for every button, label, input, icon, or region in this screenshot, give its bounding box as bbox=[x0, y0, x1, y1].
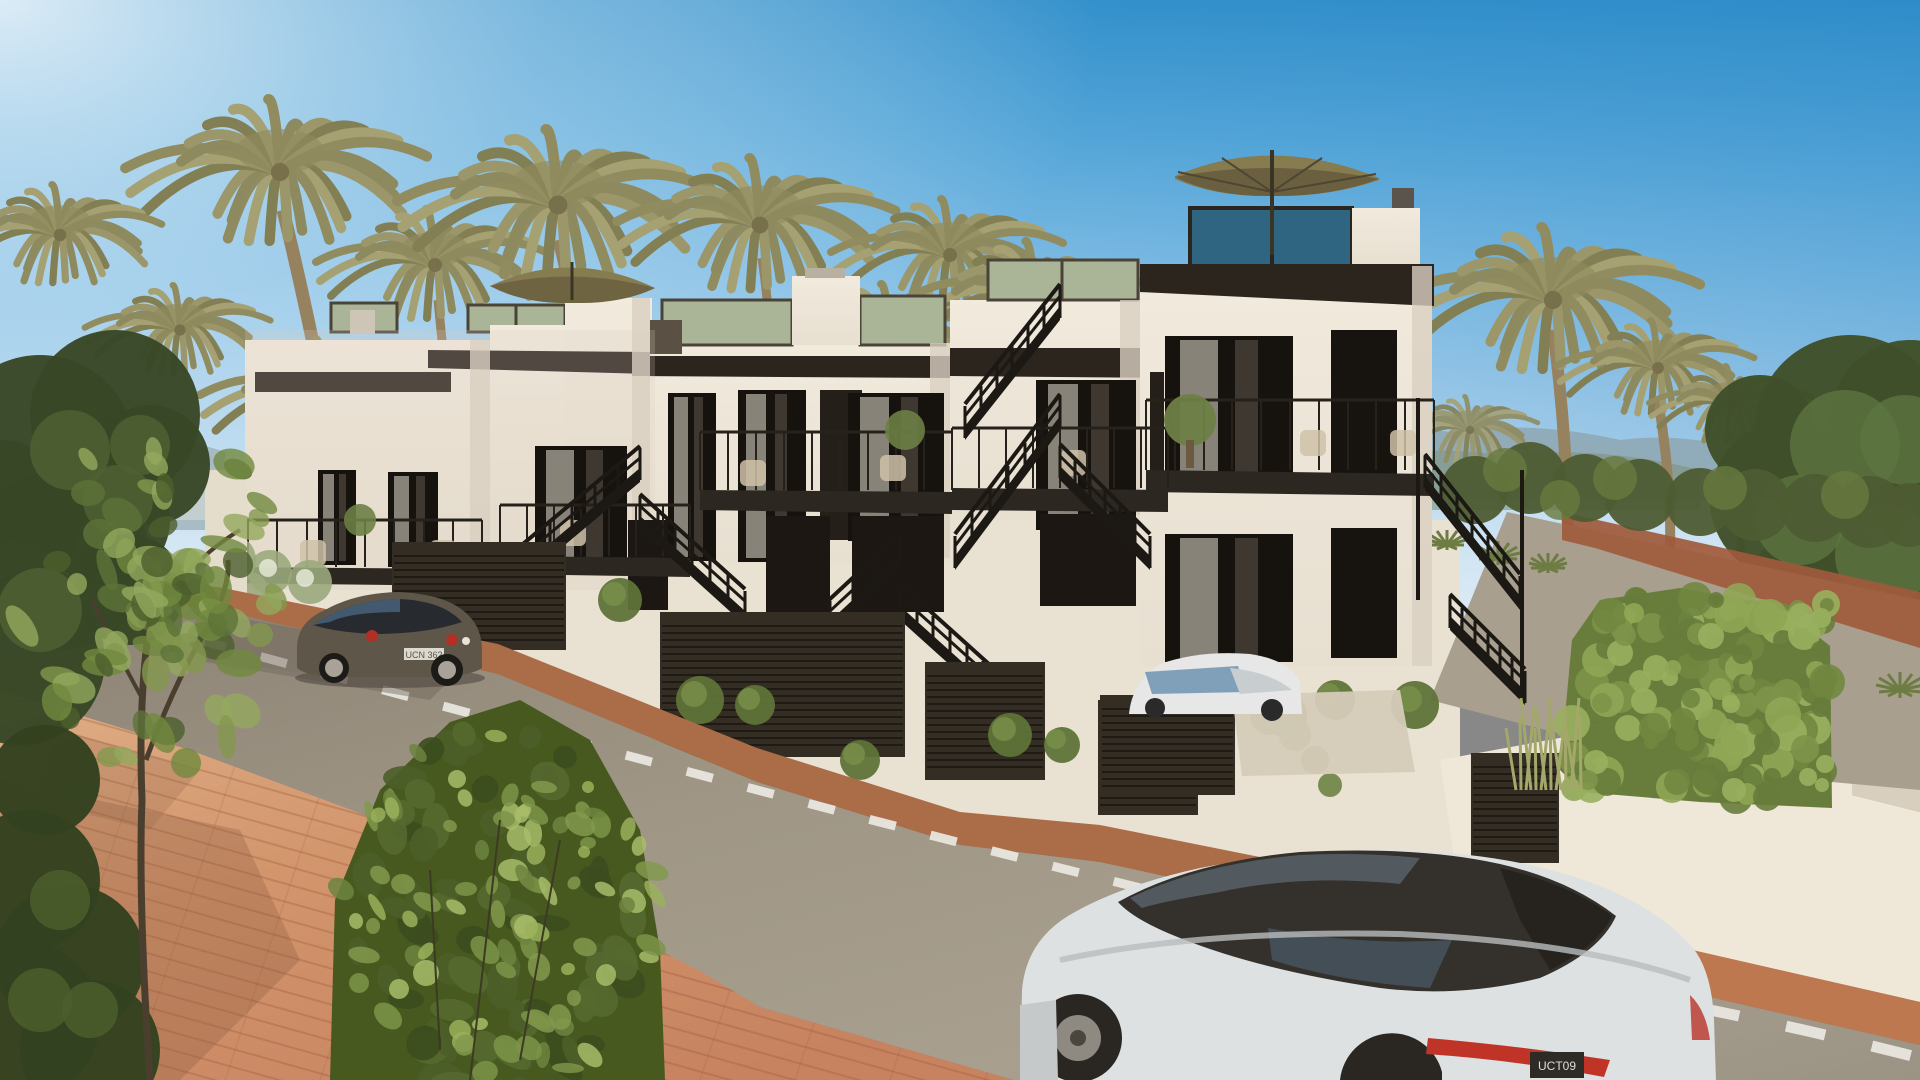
svg-text:UCT09: UCT09 bbox=[1538, 1059, 1576, 1073]
